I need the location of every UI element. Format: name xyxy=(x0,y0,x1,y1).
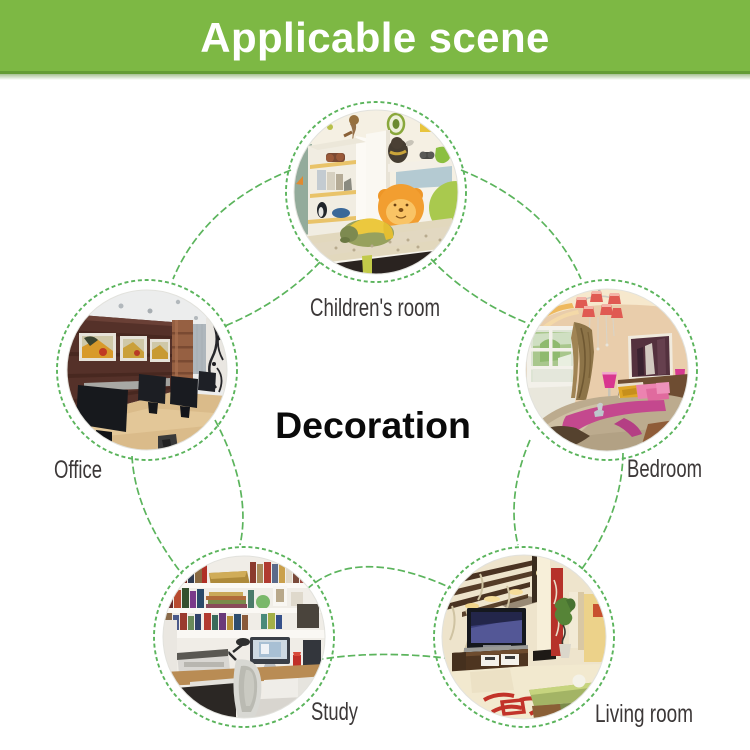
svg-text:Study: Study xyxy=(311,698,358,726)
svg-text:Applicable scene: Applicable scene xyxy=(200,14,550,61)
svg-text:Decoration: Decoration xyxy=(275,404,471,446)
svg-text:Living room: Living room xyxy=(595,700,693,728)
svg-text:Bedroom: Bedroom xyxy=(627,455,702,483)
svg-text:Children's room: Children's room xyxy=(310,294,440,322)
svg-text:Office: Office xyxy=(54,456,102,484)
